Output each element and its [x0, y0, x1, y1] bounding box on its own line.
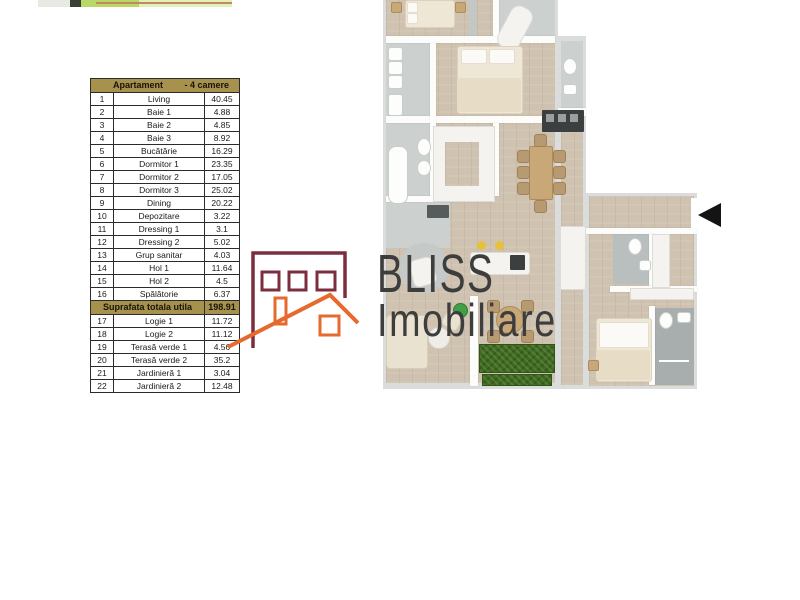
row-number: 12 [91, 236, 114, 249]
total-row: Suprafata totala utila 198.91 [91, 301, 240, 315]
room-name: Jardinieră 2 [114, 380, 205, 393]
entrance-arrow-icon [698, 203, 721, 227]
wall [386, 116, 555, 123]
dining-chair [553, 166, 566, 179]
doormat [427, 205, 449, 218]
dining-chair [517, 182, 530, 195]
room-area: 4.88 [205, 106, 240, 119]
room-name: Terasă verde 1 [114, 341, 205, 354]
row-number: 17 [91, 315, 114, 328]
room-name: Hol 2 [114, 275, 205, 288]
sink [677, 312, 691, 323]
blanket [457, 78, 521, 112]
dining-chair [553, 150, 566, 163]
table-row: 10 Depozitare 3.22 [91, 210, 240, 223]
room-name: Dormitor 1 [114, 158, 205, 171]
room-name: Dressing 1 [114, 223, 205, 236]
room-name: Jardinieră 1 [114, 367, 205, 380]
toilet [563, 58, 577, 75]
dining-chair [534, 134, 547, 147]
table-row: 20 Terasă verde 2 35.2 [91, 354, 240, 367]
dining-table [529, 146, 553, 200]
row-number: 1 [91, 93, 114, 106]
brand-subname: Imobiliare [377, 297, 557, 343]
room-name: Living [114, 93, 205, 106]
table-row: 5 Bucătărie 16.29 [91, 145, 240, 158]
row-number: 4 [91, 132, 114, 145]
row-number: 9 [91, 197, 114, 210]
room-name: Baie 3 [114, 132, 205, 145]
table-row: 2 Baie 1 4.88 [91, 106, 240, 119]
table-rows-main: 1 Living 40.45 2 Baie 1 4.88 3 Baie 2 4.… [91, 93, 240, 301]
room-area: 17.05 [205, 171, 240, 184]
cabinet [388, 75, 403, 89]
room-area: 16.29 [205, 145, 240, 158]
row-number: 18 [91, 328, 114, 341]
table-row: 7 Dormitor 2 17.05 [91, 171, 240, 184]
bliss-house-logo-icon [225, 245, 365, 355]
table-row: 18 Logie 2 11.12 [91, 328, 240, 341]
row-number: 7 [91, 171, 114, 184]
wall-column [469, 0, 477, 38]
room-name: Bucătărie [114, 145, 205, 158]
table-row: 17 Logie 1 11.72 [91, 315, 240, 328]
wall [493, 0, 499, 36]
fragment-segment [70, 0, 81, 7]
row-number: 11 [91, 223, 114, 236]
nightstand [391, 2, 402, 13]
fragment-segment [38, 0, 70, 7]
fragment-line [96, 2, 232, 4]
table-row: 19 Terasă verde 1 4.56 [91, 341, 240, 354]
room-name: Spălătorie [114, 288, 205, 301]
dining-chair [534, 200, 547, 213]
table-subtitle: - 4 camere [184, 81, 229, 90]
bathtub [388, 146, 408, 204]
wall [386, 36, 555, 43]
table-row: 13 Grup sanitar 4.03 [91, 249, 240, 262]
table-row: 12 Dressing 2 5.02 [91, 236, 240, 249]
wall [586, 228, 697, 234]
washer [388, 47, 403, 61]
green-terrace [479, 344, 555, 373]
row-number: 16 [91, 288, 114, 301]
table-row: 11 Dressing 1 3.1 [91, 223, 240, 236]
wardrobe [630, 288, 694, 300]
room-name: Dormitor 3 [114, 184, 205, 197]
shower-divider [659, 360, 689, 362]
room-area: 40.45 [205, 93, 240, 106]
toilet [659, 312, 673, 329]
row-number: 21 [91, 367, 114, 380]
dressing-floor [445, 142, 479, 186]
room-area: 4.85 [205, 119, 240, 132]
table-header-row: Apartament - 4 camere [91, 79, 240, 93]
room-area: 20.22 [205, 197, 240, 210]
room-area: 3.04 [205, 367, 240, 380]
dining-chair [517, 166, 530, 179]
table-row: 8 Dormitor 3 25.02 [91, 184, 240, 197]
room-name: Grup sanitar [114, 249, 205, 262]
row-number: 2 [91, 106, 114, 119]
room-area: 35.2 [205, 354, 240, 367]
dining-chair [553, 182, 566, 195]
bathroom-floor [561, 41, 583, 111]
page: Apartament - 4 camere 1 Living 40.45 2 B… [0, 0, 800, 600]
table-title: Apartament [113, 81, 163, 90]
room-name: Dining [114, 197, 205, 210]
row-number: 3 [91, 119, 114, 132]
room-area-table: Apartament - 4 camere 1 Living 40.45 2 B… [90, 78, 240, 393]
cooktop [510, 255, 525, 270]
sink [639, 260, 651, 271]
dining-chair [517, 150, 530, 163]
wardrobe [560, 226, 586, 290]
appliance [546, 114, 554, 122]
table-row: 1 Living 40.45 [91, 93, 240, 106]
row-number: 22 [91, 380, 114, 393]
room-area: 23.35 [205, 158, 240, 171]
table-row: 15 Hol 2 4.5 [91, 275, 240, 288]
row-number: 8 [91, 184, 114, 197]
green-terrace [482, 374, 552, 386]
row-number: 13 [91, 249, 114, 262]
appliance [558, 114, 566, 122]
appliance [570, 114, 578, 122]
room-area: 25.02 [205, 184, 240, 197]
table-row: 14 Hol 1 11.64 [91, 262, 240, 275]
room-name: Dressing 2 [114, 236, 205, 249]
room-name: Hol 1 [114, 262, 205, 275]
room-area: 3.1 [205, 223, 240, 236]
brand-name: BLISS [377, 247, 494, 301]
dryer [388, 61, 403, 75]
room-area: 12.48 [205, 380, 240, 393]
row-number: 5 [91, 145, 114, 158]
row-number: 6 [91, 158, 114, 171]
pillow [489, 49, 515, 64]
room-area: 8.92 [205, 132, 240, 145]
pillow [461, 49, 487, 64]
room-name: Baie 1 [114, 106, 205, 119]
entrance-door-gap [691, 198, 697, 228]
blanket [596, 350, 650, 380]
row-number: 20 [91, 354, 114, 367]
wardrobe [652, 234, 670, 288]
table-row: 16 Spălătorie 6.37 [91, 288, 240, 301]
sink-counter [388, 94, 403, 116]
room-name: Dormitor 2 [114, 171, 205, 184]
nightstand [455, 2, 466, 13]
room-name: Depozitare [114, 210, 205, 223]
pillow [407, 2, 418, 13]
total-label: Suprafata totala utila [91, 301, 205, 315]
sink [563, 84, 577, 95]
table-row: 21 Jardinieră 1 3.04 [91, 367, 240, 380]
table-row: 4 Baie 3 8.92 [91, 132, 240, 145]
room-area: 3.22 [205, 210, 240, 223]
bidet [417, 160, 431, 176]
room-name: Terasă verde 2 [114, 354, 205, 367]
table-row: 22 Jardinieră 2 12.48 [91, 380, 240, 393]
table-row: 9 Dining 20.22 [91, 197, 240, 210]
row-number: 15 [91, 275, 114, 288]
bar-stool [495, 241, 504, 250]
table-rows-exterior: 17 Logie 1 11.72 18 Logie 2 11.12 19 Ter… [91, 315, 240, 393]
toilet [417, 138, 431, 156]
row-number: 10 [91, 210, 114, 223]
room-name: Logie 1 [114, 315, 205, 328]
table-row: 3 Baie 2 4.85 [91, 119, 240, 132]
row-number: 19 [91, 341, 114, 354]
row-number: 14 [91, 262, 114, 275]
pillow [407, 13, 418, 24]
toilet [628, 238, 642, 255]
room-name: Baie 2 [114, 119, 205, 132]
room-name: Logie 2 [114, 328, 205, 341]
table-row: 6 Dormitor 1 23.35 [91, 158, 240, 171]
nightstand [588, 360, 599, 371]
pillow [599, 322, 649, 348]
